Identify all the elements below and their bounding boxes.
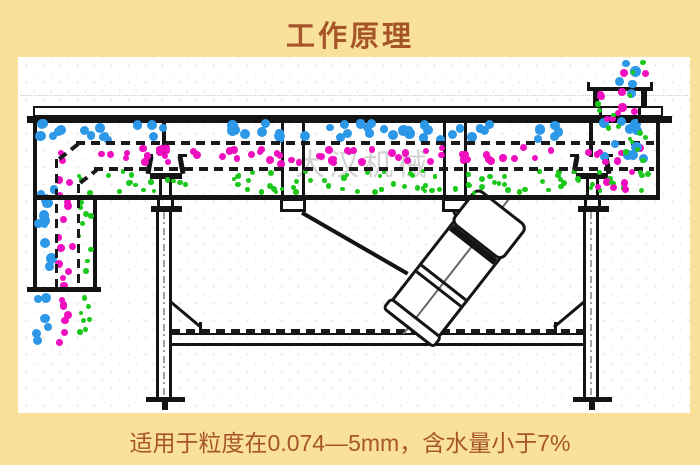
discharge-flange xyxy=(27,287,101,292)
spring-fork-left-tick-b xyxy=(178,154,187,157)
deck-bottom xyxy=(33,195,660,200)
leg-centerline xyxy=(164,212,165,398)
hanger-rods-right xyxy=(443,123,467,195)
spring-fork-right-tick-a xyxy=(570,154,579,157)
feed-inlet-leg-right xyxy=(641,91,647,106)
left-wall xyxy=(33,116,37,289)
caption-text: 适用于粒度在0.074—5mm，含水量小于7% xyxy=(0,424,700,458)
chute-right-wall xyxy=(93,199,97,287)
feed-opening-edge-left xyxy=(599,106,602,123)
leg-centerline xyxy=(591,212,592,398)
leg-foot-right-stem xyxy=(589,402,595,410)
cover-flange-band xyxy=(27,116,672,123)
cross-beam-bottom xyxy=(171,343,585,346)
feed-inlet-tick-left xyxy=(587,82,590,87)
spring-fork-right-tick-b xyxy=(604,154,613,157)
support-leg-right xyxy=(583,212,599,398)
feed-inlet-leg-left xyxy=(593,91,599,106)
feed-inlet-tick-right xyxy=(650,82,653,87)
feed-opening-edge-right xyxy=(638,106,641,123)
spring-rod-left xyxy=(162,123,166,157)
leg-foot-left-stem xyxy=(162,402,168,410)
page: 工作原理 大汉机械 xyxy=(0,0,700,465)
page-title: 工作原理 xyxy=(0,13,700,55)
spring-rod-right xyxy=(589,123,593,157)
screen-mesh-1 xyxy=(76,141,654,145)
gusset-right-vertical xyxy=(554,322,557,333)
dotted-guide-line xyxy=(20,95,688,96)
spring-fork-left-tick-a xyxy=(144,154,153,157)
screen-mesh-2-drop xyxy=(77,184,80,287)
spring-stem-right xyxy=(586,179,599,195)
right-wall xyxy=(656,123,660,198)
cross-beam-top-line xyxy=(171,333,585,335)
support-leg-left xyxy=(156,212,172,398)
hanger-rods-left xyxy=(281,123,305,195)
spring-stem-left xyxy=(159,179,172,195)
screen-mesh-2 xyxy=(94,167,654,171)
screen-mesh-1-drop xyxy=(55,159,58,287)
gusset-left-vertical xyxy=(199,322,202,333)
